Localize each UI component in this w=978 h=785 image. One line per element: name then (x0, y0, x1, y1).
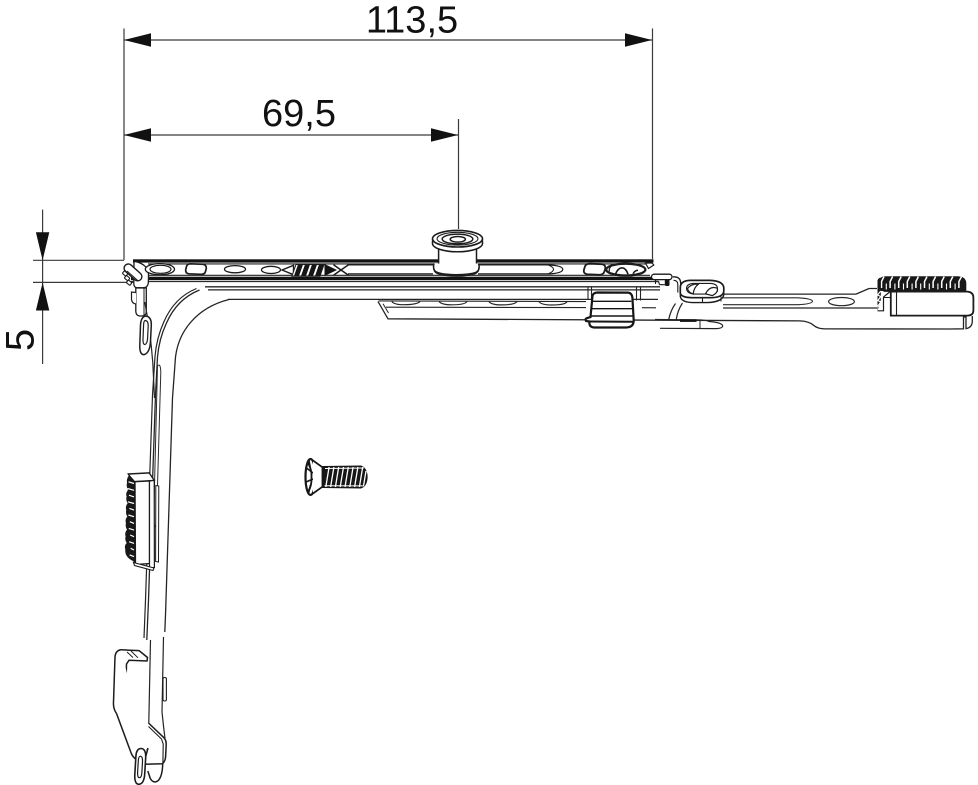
svg-text:113,5: 113,5 (366, 0, 458, 42)
svg-text:69,5: 69,5 (262, 93, 336, 135)
svg-text:5: 5 (0, 329, 43, 351)
